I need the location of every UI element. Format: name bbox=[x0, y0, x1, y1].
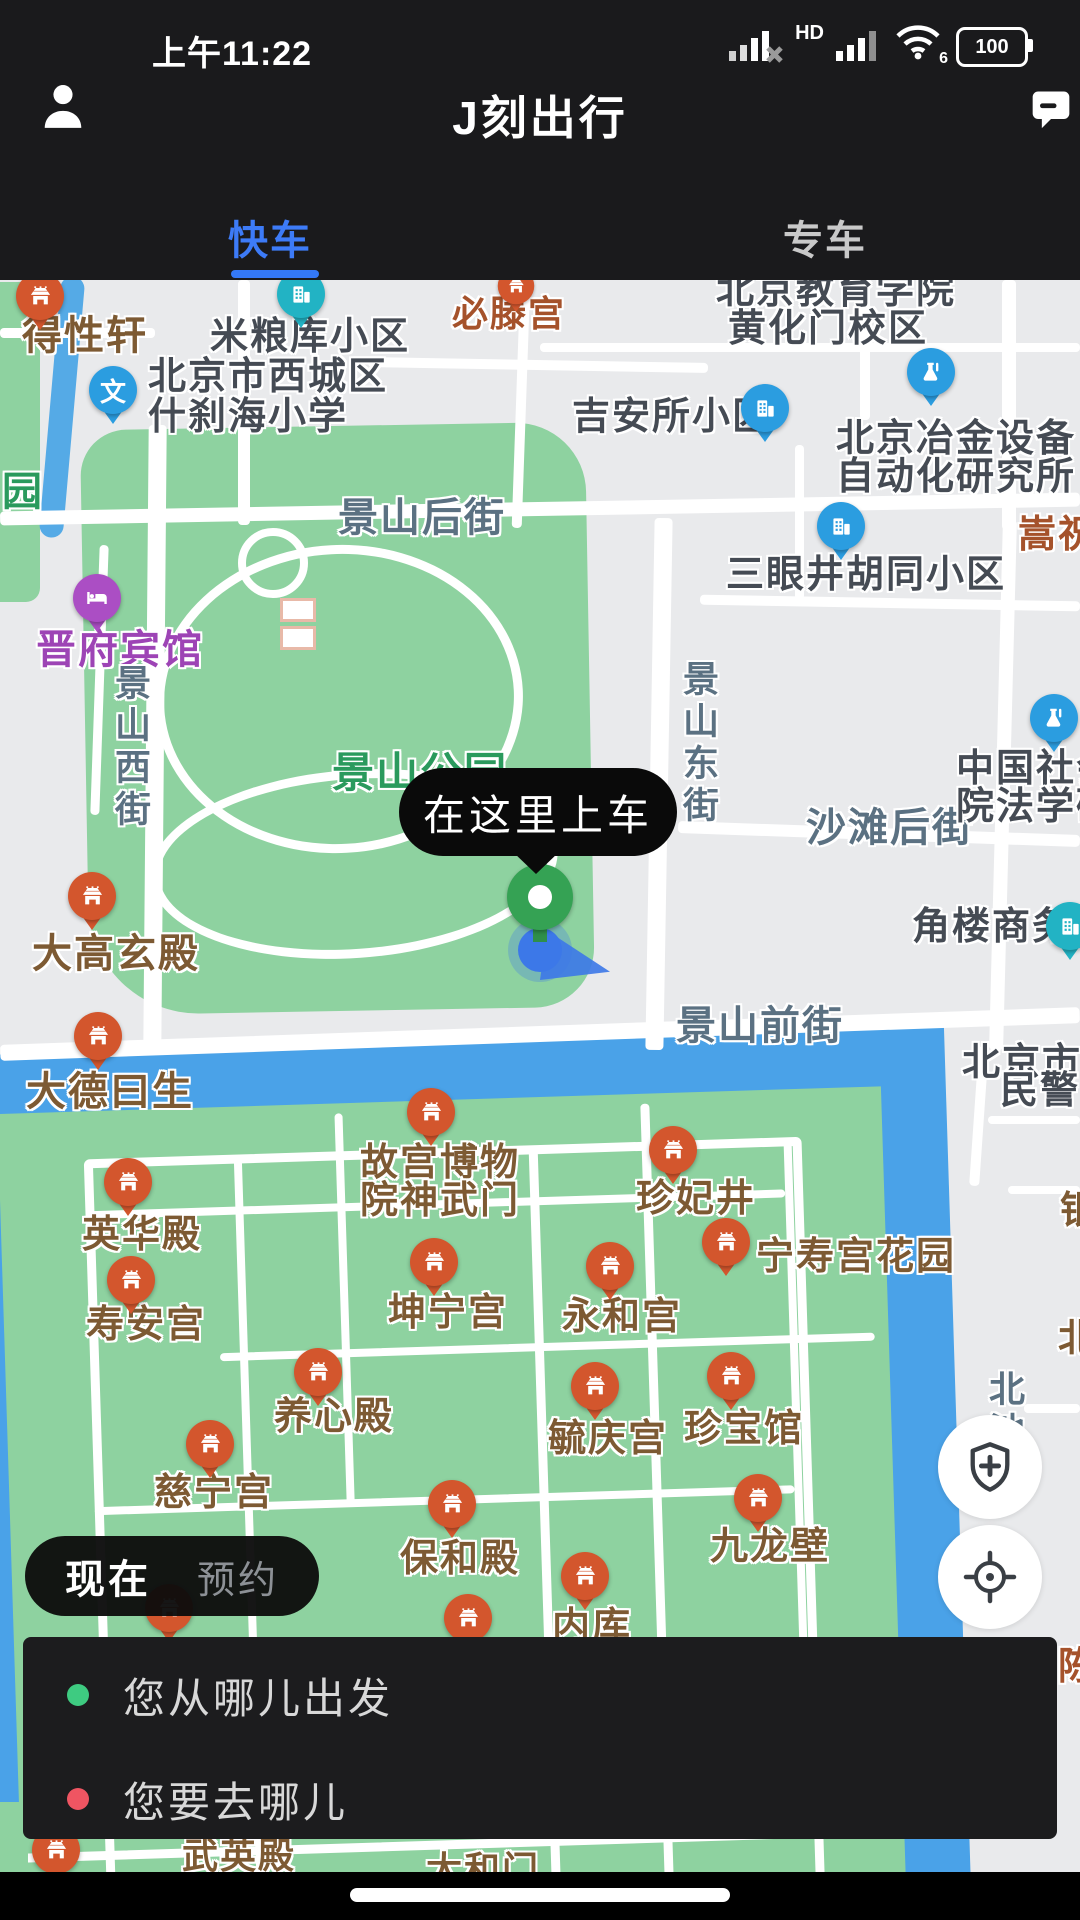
map-label: 珍宝馆 bbox=[684, 1410, 804, 1448]
map-label: 保和殿 bbox=[400, 1540, 520, 1578]
map-label: 北京市西城区 bbox=[148, 358, 388, 396]
battery-icon: 100 bbox=[956, 27, 1028, 67]
map-label: 毓庆宫 bbox=[548, 1420, 668, 1458]
tab-express[interactable]: 快车 bbox=[228, 208, 312, 266]
top-bar: 上午11:22 HD 6 100 J刻出行 快车 专车 bbox=[0, 0, 1080, 280]
road bbox=[700, 595, 1080, 612]
search-panel: 您从哪儿出发 您要去哪儿 bbox=[23, 1637, 1057, 1839]
messages-button[interactable] bbox=[1028, 86, 1074, 130]
map-label: 景山东街 bbox=[680, 660, 716, 828]
cellular-signal-2-icon bbox=[836, 25, 880, 68]
road bbox=[368, 357, 708, 373]
safety-center-button[interactable] bbox=[938, 1415, 1042, 1519]
map-pin-flask[interactable] bbox=[907, 348, 955, 410]
map-pin-temple[interactable] bbox=[294, 1348, 342, 1410]
active-tab-indicator bbox=[231, 270, 319, 278]
map-label: 景山后街 bbox=[338, 498, 506, 538]
home-indicator[interactable] bbox=[350, 1888, 730, 1902]
map-label: 陈 bbox=[1058, 1648, 1080, 1686]
status-time: 上午11:22 bbox=[152, 26, 312, 75]
map-pin-temple[interactable] bbox=[410, 1238, 458, 1300]
map-pin-hotel[interactable] bbox=[73, 574, 121, 636]
map-label: 黄化门校区 bbox=[728, 310, 928, 348]
hd-badge: HD bbox=[795, 22, 824, 45]
toggle-now[interactable]: 现在 bbox=[65, 1547, 151, 1605]
chat-icon bbox=[1028, 86, 1074, 130]
tab-premium[interactable]: 专车 bbox=[783, 208, 867, 266]
crosshair-icon bbox=[962, 1549, 1018, 1605]
destination-dot-icon bbox=[67, 1788, 89, 1810]
map-label: 院法学研 bbox=[956, 788, 1080, 826]
map-pin-temple[interactable] bbox=[74, 1012, 122, 1074]
map-label: 嵩祝寺 bbox=[1018, 516, 1080, 554]
page-title: J刻出行 bbox=[0, 82, 1080, 148]
map-label: 民警门 bbox=[1000, 1072, 1080, 1110]
map-label: 景山西街 bbox=[112, 664, 148, 832]
map-pin-bblue[interactable] bbox=[817, 502, 865, 564]
map-label: 什刹海小学 bbox=[148, 398, 348, 436]
app-screen: 得性轩米粮库小区北京市西城区什刹海小学必滕宫北京教育学院黄化门校区吉安所小区北京… bbox=[0, 0, 1080, 1920]
park-building bbox=[280, 626, 316, 650]
map-pin-temple[interactable] bbox=[586, 1242, 634, 1304]
map-pin-temple[interactable] bbox=[407, 1088, 455, 1150]
wifi-icon: 6 bbox=[892, 19, 944, 66]
road bbox=[988, 1116, 1080, 1124]
destination-field[interactable]: 您要去哪儿 bbox=[23, 1769, 1057, 1829]
map-pin-temple[interactable] bbox=[68, 872, 116, 934]
road bbox=[1024, 1404, 1080, 1413]
map-pin-bteal[interactable] bbox=[1046, 902, 1080, 964]
shield-plus-icon bbox=[964, 1440, 1016, 1494]
toggle-reserve[interactable]: 预约 bbox=[197, 1549, 279, 1604]
ride-time-toggle: 现在 预约 bbox=[25, 1536, 319, 1616]
map-label: 北京冶金设备 bbox=[836, 420, 1076, 458]
map-pin-temple[interactable] bbox=[428, 1480, 476, 1542]
map-label: 英华殿 bbox=[82, 1216, 202, 1254]
map-pin-temple[interactable] bbox=[571, 1362, 619, 1424]
wifi-6-badge: 6 bbox=[939, 50, 948, 68]
map-pin-temple[interactable] bbox=[702, 1218, 750, 1280]
park-building bbox=[280, 598, 316, 622]
map-label: 北 bbox=[1058, 1320, 1080, 1358]
map-label: 银 bbox=[1060, 1192, 1080, 1230]
map-label: 自动化研究所 bbox=[836, 458, 1076, 496]
map-label: 大高玄殿 bbox=[32, 934, 200, 974]
map-canvas[interactable]: 得性轩米粮库小区北京市西城区什刹海小学必滕宫北京教育学院黄化门校区吉安所小区北京… bbox=[0, 0, 1080, 1920]
map-pin-temple[interactable] bbox=[649, 1126, 697, 1188]
map-pin-temple[interactable] bbox=[16, 272, 64, 334]
pickup-callout[interactable]: 在这里上车 bbox=[399, 768, 677, 856]
map-pin-temple[interactable] bbox=[561, 1552, 609, 1614]
cellular-signal-1-icon bbox=[729, 25, 783, 68]
pickup-pin-dot bbox=[528, 885, 552, 909]
status-icons: HD 6 100 bbox=[729, 24, 1028, 68]
map-label: 景山前街 bbox=[676, 1006, 844, 1046]
map-pin-temple[interactable] bbox=[707, 1352, 755, 1414]
park-path bbox=[238, 528, 308, 598]
map-pin-temple[interactable] bbox=[186, 1420, 234, 1482]
map-pin-temple[interactable] bbox=[107, 1256, 155, 1318]
map-label: 园 bbox=[2, 472, 44, 512]
origin-field[interactable]: 您从哪儿出发 bbox=[23, 1665, 1057, 1725]
origin-placeholder: 您从哪儿出发 bbox=[123, 1665, 393, 1726]
map-pin-temple[interactable] bbox=[734, 1474, 782, 1536]
origin-dot-icon bbox=[67, 1684, 89, 1706]
destination-placeholder: 您要去哪儿 bbox=[123, 1769, 348, 1830]
map-pin-wen[interactable]: 文 bbox=[89, 366, 137, 428]
battery-nub bbox=[1028, 39, 1033, 52]
map-pin-bblue[interactable] bbox=[741, 384, 789, 446]
map-label: 宁寿宫花园 bbox=[756, 1238, 956, 1276]
map-label: 三眼井胡同小区 bbox=[726, 556, 1006, 594]
map-label: 大德曰生 bbox=[26, 1072, 194, 1112]
map-pin-flask[interactable] bbox=[1030, 694, 1078, 756]
map-label: 院神武门 bbox=[360, 1182, 520, 1220]
map-pin-temple[interactable] bbox=[104, 1158, 152, 1220]
battery-level: 100 bbox=[975, 36, 1008, 59]
map-label: 沙滩后街 bbox=[806, 808, 974, 848]
map-label: 武英殿 bbox=[182, 1838, 296, 1874]
locate-me-button[interactable] bbox=[938, 1525, 1042, 1629]
